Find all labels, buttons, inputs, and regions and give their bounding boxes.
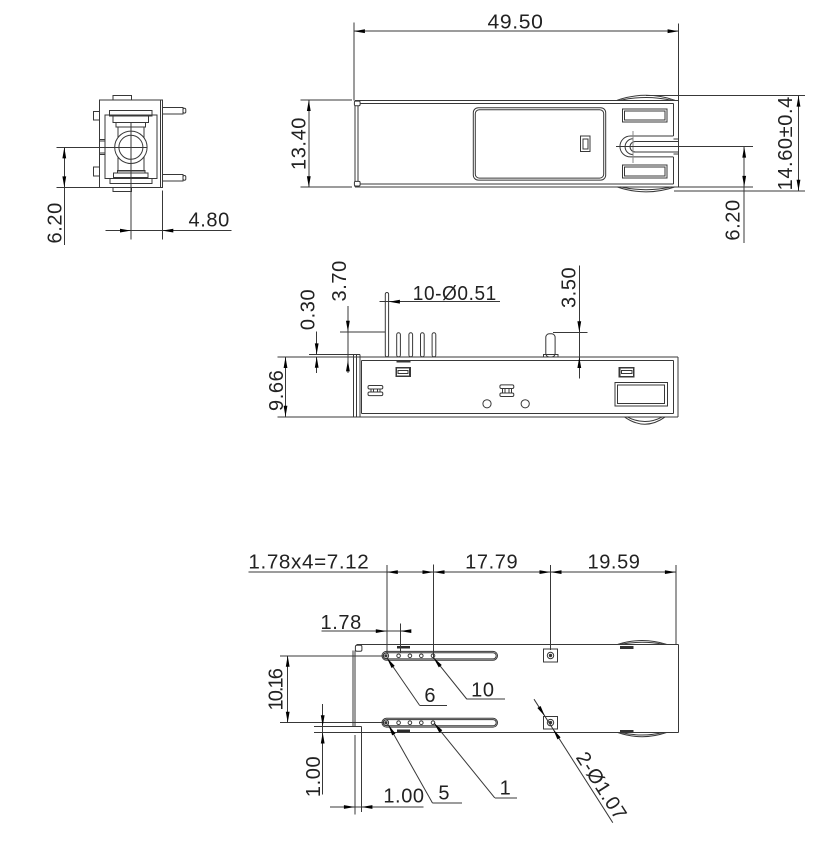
- svg-text:4.80: 4.80: [189, 210, 230, 232]
- svg-text:13.40: 13.40: [289, 117, 311, 170]
- svg-text:6.20: 6.20: [45, 202, 67, 243]
- svg-text:0.30: 0.30: [298, 289, 320, 330]
- svg-text:2-Ø1.07: 2-Ø1.07: [571, 748, 631, 824]
- svg-text:1.78: 1.78: [321, 612, 362, 634]
- svg-text:3.70: 3.70: [329, 260, 351, 301]
- svg-text:9.66: 9.66: [266, 370, 288, 411]
- svg-text:5: 5: [438, 783, 450, 805]
- svg-text:1.00: 1.00: [303, 756, 325, 797]
- svg-text:10-Ø0.51: 10-Ø0.51: [413, 283, 497, 305]
- svg-text:14.60±0.4: 14.60±0.4: [775, 96, 797, 190]
- svg-text:3.50: 3.50: [559, 267, 581, 308]
- svg-text:1: 1: [500, 778, 512, 800]
- svg-text:1.00: 1.00: [383, 786, 424, 808]
- svg-text:10.16: 10.16: [266, 668, 288, 711]
- svg-text:10: 10: [471, 680, 494, 702]
- svg-text:19.59: 19.59: [587, 552, 640, 574]
- svg-text:6.20: 6.20: [723, 199, 745, 240]
- svg-text:6: 6: [424, 685, 436, 707]
- svg-text:17.79: 17.79: [465, 552, 518, 574]
- svg-text:49.50: 49.50: [488, 12, 544, 34]
- svg-text:1.78x4=7.12: 1.78x4=7.12: [248, 552, 369, 574]
